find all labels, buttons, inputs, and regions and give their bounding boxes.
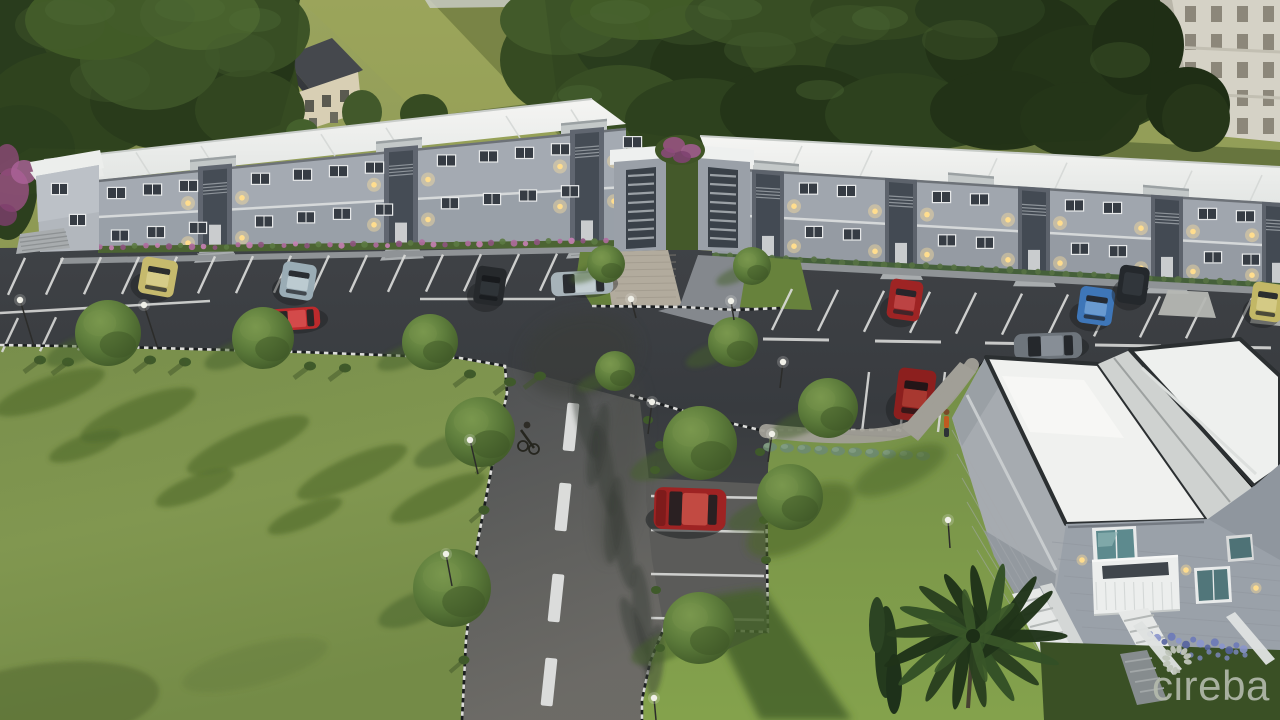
svg-text:cireba: cireba [1152,662,1270,709]
